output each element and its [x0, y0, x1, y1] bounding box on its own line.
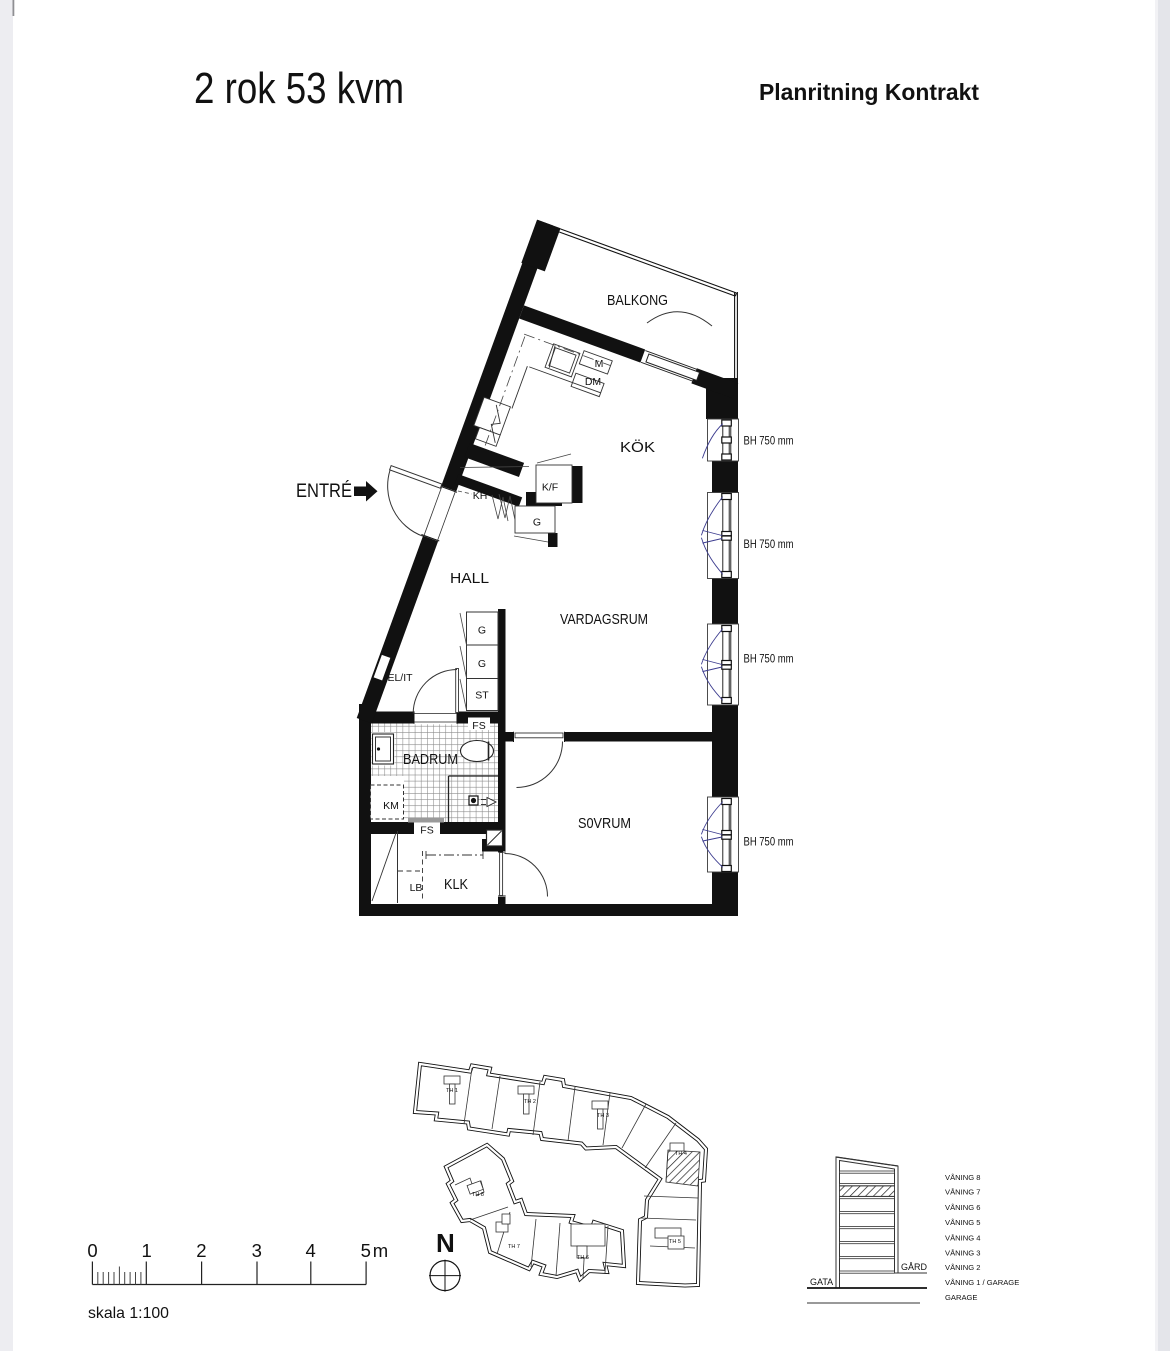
svg-text:TH 5: TH 5 — [669, 1239, 681, 1245]
svg-text:K/F: K/F — [542, 482, 558, 494]
svg-text:KM: KM — [383, 800, 399, 812]
svg-text:BH 750 mm: BH 750 mm — [744, 652, 794, 666]
svg-text:2: 2 — [196, 1240, 206, 1261]
svg-text:Planritning Kontrakt: Planritning Kontrakt — [759, 79, 979, 105]
svg-text:VÅNING 3: VÅNING 3 — [945, 1249, 980, 1258]
svg-text:G: G — [478, 625, 486, 637]
svg-text:TH 8: TH 8 — [472, 1192, 484, 1198]
svg-text:VÅNING 4: VÅNING 4 — [945, 1234, 980, 1243]
svg-text:BH 750 mm: BH 750 mm — [744, 434, 794, 448]
svg-text:GÅRD: GÅRD — [901, 1262, 928, 1272]
svg-text:G: G — [533, 517, 541, 529]
svg-text:VÅNING 6: VÅNING 6 — [945, 1203, 980, 1212]
svg-text:TH 3: TH 3 — [597, 1113, 609, 1119]
svg-text:BALKONG: BALKONG — [607, 292, 668, 309]
svg-text:VARDAGSRUM: VARDAGSRUM — [560, 611, 648, 628]
svg-text:2 rok 53 kvm: 2 rok 53 kvm — [194, 65, 404, 113]
svg-text:G: G — [478, 658, 486, 670]
svg-text:KLK: KLK — [444, 876, 468, 893]
svg-text:DM: DM — [585, 376, 601, 388]
svg-text:VÅNING 8: VÅNING 8 — [945, 1173, 980, 1182]
svg-text:3: 3 — [252, 1240, 262, 1261]
svg-text:0: 0 — [87, 1240, 97, 1261]
svg-text:BH 750 mm: BH 750 mm — [744, 537, 794, 551]
svg-text:S0VRUM: S0VRUM — [578, 815, 631, 832]
svg-text:TH 4: TH 4 — [675, 1151, 687, 1157]
svg-text:N: N — [436, 1228, 455, 1258]
svg-text:VÅNING 5: VÅNING 5 — [945, 1218, 980, 1227]
svg-text:FS: FS — [420, 825, 433, 837]
svg-text:GARAGE: GARAGE — [945, 1293, 978, 1302]
svg-text:ST: ST — [475, 690, 489, 702]
svg-text:TH 6: TH 6 — [577, 1255, 589, 1261]
svg-text:KH: KH — [473, 490, 488, 502]
svg-text:ENTRÉ: ENTRÉ — [296, 481, 352, 502]
svg-text:TH 2: TH 2 — [524, 1099, 536, 1105]
svg-text:TH 7: TH 7 — [508, 1244, 520, 1250]
svg-text:m: m — [373, 1240, 388, 1261]
svg-text:HALL: HALL — [450, 570, 489, 587]
svg-text:skala 1:100: skala 1:100 — [88, 1305, 169, 1322]
svg-text:KÖK: KÖK — [620, 438, 655, 456]
svg-text:GATA: GATA — [810, 1277, 833, 1287]
svg-text:LB: LB — [410, 882, 423, 894]
svg-text:VÅNING 2: VÅNING 2 — [945, 1263, 980, 1272]
svg-text:BH 750 mm: BH 750 mm — [744, 835, 794, 849]
svg-text:VÅNING 7: VÅNING 7 — [945, 1188, 980, 1197]
svg-text:EL/IT: EL/IT — [387, 672, 413, 684]
svg-text:4: 4 — [305, 1240, 315, 1261]
svg-text:TH 1: TH 1 — [446, 1088, 458, 1094]
svg-text:BADRUM: BADRUM — [403, 751, 458, 768]
svg-text:M: M — [595, 358, 604, 370]
svg-text:VÅNING 1 / GARAGE: VÅNING 1 / GARAGE — [945, 1278, 1019, 1287]
svg-text:5: 5 — [361, 1240, 371, 1261]
svg-text:1: 1 — [141, 1240, 151, 1261]
svg-text:FS: FS — [472, 720, 485, 732]
